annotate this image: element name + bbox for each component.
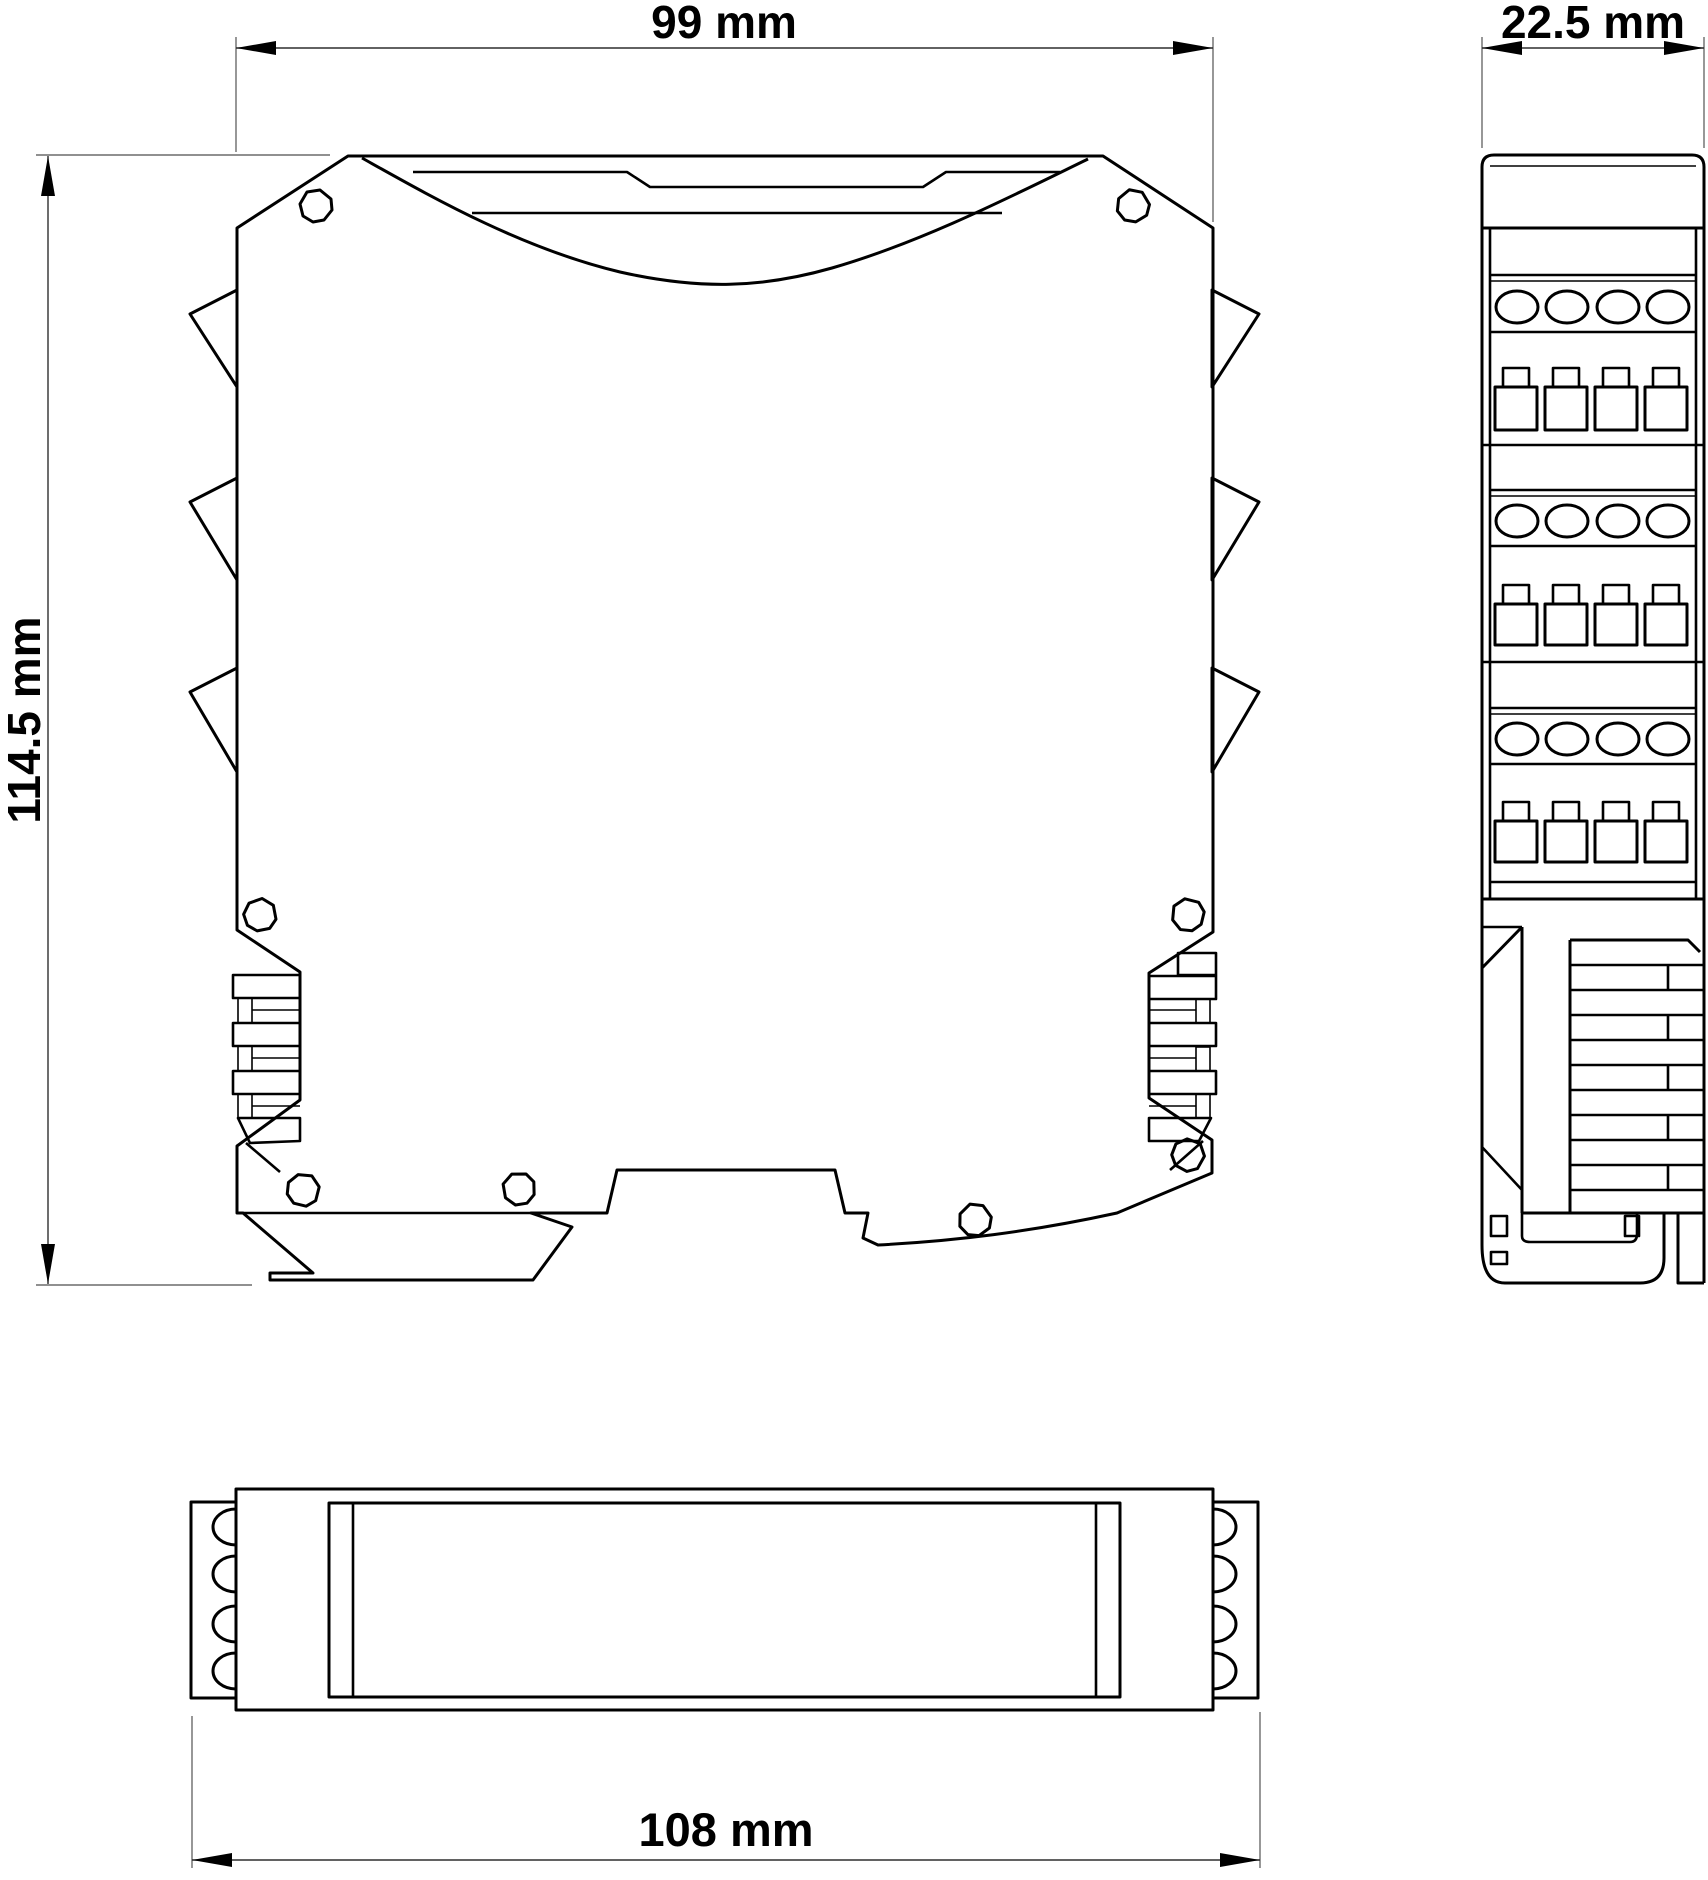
screw-hole-icon bbox=[1112, 185, 1153, 226]
technical-drawing: 99 mm 22.5 mm 114.5 mm 108 mm bbox=[0, 0, 1708, 1880]
dimension-label-depth: 22.5 mm bbox=[1501, 0, 1685, 48]
screw-hole-icons bbox=[237, 185, 1209, 1239]
side-view bbox=[1482, 155, 1704, 1283]
dimension-label-width-top: 99 mm bbox=[651, 0, 797, 48]
terminal-block-left bbox=[191, 1502, 236, 1698]
bottom-view bbox=[191, 1489, 1258, 1710]
screw-hole-icon bbox=[237, 892, 282, 937]
terminal-level-3 bbox=[1482, 708, 1704, 899]
dimension-width-top: 99 mm bbox=[236, 0, 1213, 222]
drawing-sheet: 99 mm 22.5 mm 114.5 mm 108 mm bbox=[0, 0, 1708, 1880]
screw-hole-icon bbox=[282, 1169, 325, 1212]
label-window bbox=[329, 1503, 1120, 1697]
din-clip-side bbox=[1482, 927, 1704, 1283]
dimension-label-height: 114.5 mm bbox=[0, 616, 50, 823]
label-recess bbox=[362, 158, 1088, 284]
front-view-outline bbox=[237, 156, 1213, 1280]
terminal-level-2 bbox=[1482, 490, 1704, 662]
screw-hole-icon bbox=[300, 190, 332, 222]
dimension-depth: 22.5 mm bbox=[1482, 0, 1704, 148]
terminal-block-right bbox=[1213, 1502, 1258, 1698]
spacer-tabs-left bbox=[190, 290, 237, 772]
spacer-tabs-right bbox=[1212, 290, 1259, 772]
screw-hole-icon bbox=[1167, 894, 1210, 937]
dimension-width-bottom: 108 mm bbox=[192, 1712, 1260, 1868]
bottom-view-body bbox=[236, 1489, 1213, 1710]
dimension-label-width-bottom: 108 mm bbox=[638, 1803, 813, 1856]
terminal-level-1 bbox=[1482, 275, 1704, 445]
front-view bbox=[190, 156, 1259, 1280]
screw-hole-icon bbox=[496, 1166, 541, 1211]
